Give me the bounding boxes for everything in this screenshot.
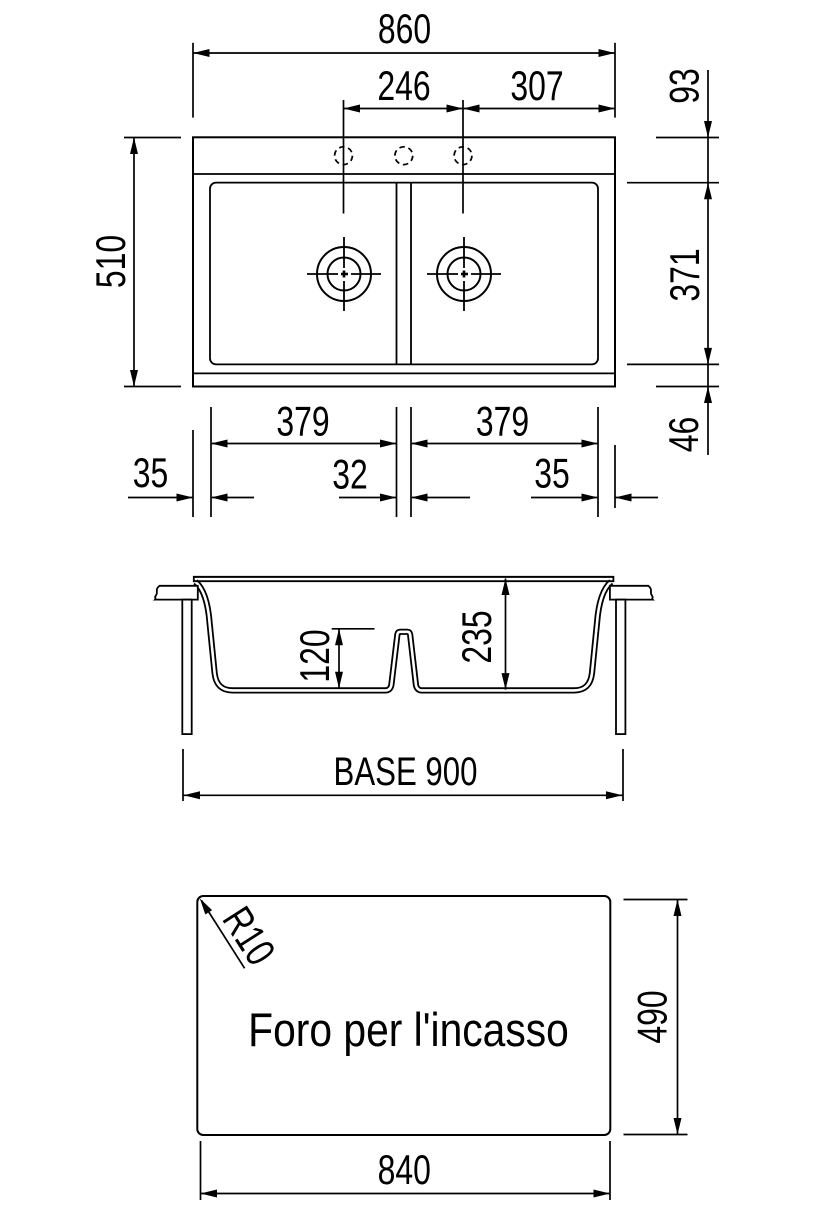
svg-text:BASE 900: BASE 900 xyxy=(334,750,478,795)
svg-text:371: 371 xyxy=(661,248,708,301)
svg-text:35: 35 xyxy=(133,449,169,496)
svg-text:490: 490 xyxy=(629,990,676,1043)
svg-text:32: 32 xyxy=(332,450,368,497)
svg-text:35: 35 xyxy=(534,449,570,496)
svg-text:840: 840 xyxy=(378,1146,431,1193)
svg-text:46: 46 xyxy=(660,417,707,453)
svg-text:860: 860 xyxy=(378,5,431,52)
svg-text:93: 93 xyxy=(660,68,707,104)
svg-text:120: 120 xyxy=(291,629,338,682)
svg-text:379: 379 xyxy=(276,397,329,444)
svg-text:379: 379 xyxy=(476,397,529,444)
svg-text:Foro per l'incasso: Foro per l'incasso xyxy=(248,1004,569,1056)
svg-text:510: 510 xyxy=(87,235,134,288)
svg-text:246: 246 xyxy=(377,62,430,109)
svg-text:307: 307 xyxy=(510,62,563,109)
svg-text:235: 235 xyxy=(453,610,500,663)
